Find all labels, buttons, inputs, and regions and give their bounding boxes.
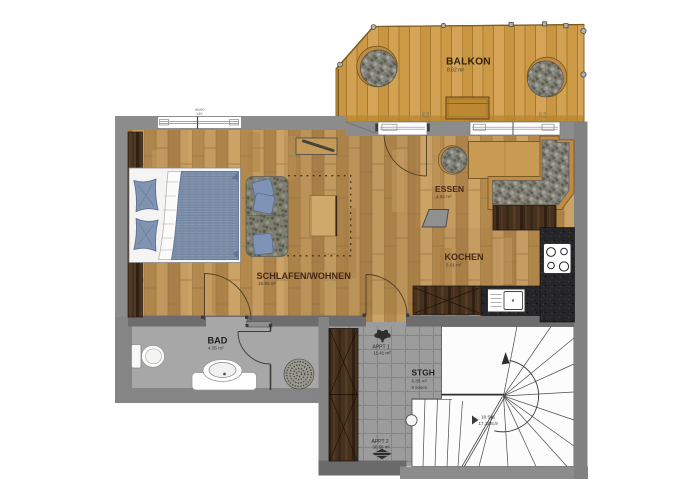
svg-text:190: 190 bbox=[422, 112, 426, 118]
svg-text:18 StG: 18 StG bbox=[481, 415, 496, 420]
svg-text:STGH: STGH bbox=[412, 368, 435, 378]
svg-text:11.41 m²: 11.41 m² bbox=[374, 351, 392, 356]
svg-text:6.85 m²: 6.85 m² bbox=[412, 379, 428, 384]
svg-text:5.01 m²: 5.01 m² bbox=[446, 262, 462, 267]
svg-text:216: 216 bbox=[426, 112, 430, 118]
svg-text:140: 140 bbox=[196, 112, 202, 116]
svg-text:17,3/25,9: 17,3/25,9 bbox=[479, 421, 499, 426]
svg-text:SCHLAFEN/WOHNEN: SCHLAFEN/WOHNEN bbox=[257, 271, 352, 281]
svg-text:4.55 m²: 4.55 m² bbox=[208, 345, 224, 350]
svg-text:216: 216 bbox=[543, 112, 547, 118]
svg-text:8.62 m²: 8.62 m² bbox=[447, 68, 464, 74]
svg-text:BALKON: BALKON bbox=[446, 57, 491, 68]
svg-text:ESSEN: ESSEN bbox=[435, 184, 464, 194]
svg-text:30.69 m²: 30.69 m² bbox=[373, 445, 391, 450]
svg-text:120: 120 bbox=[539, 112, 543, 118]
svg-text:15.80 m²: 15.80 m² bbox=[258, 281, 277, 286]
svg-text:9 liesen: 9 liesen bbox=[412, 385, 428, 390]
svg-text:4.92 m²: 4.92 m² bbox=[436, 194, 452, 199]
svg-text:KOCHEN: KOCHEN bbox=[445, 252, 484, 262]
svg-text:BAD: BAD bbox=[208, 335, 228, 345]
